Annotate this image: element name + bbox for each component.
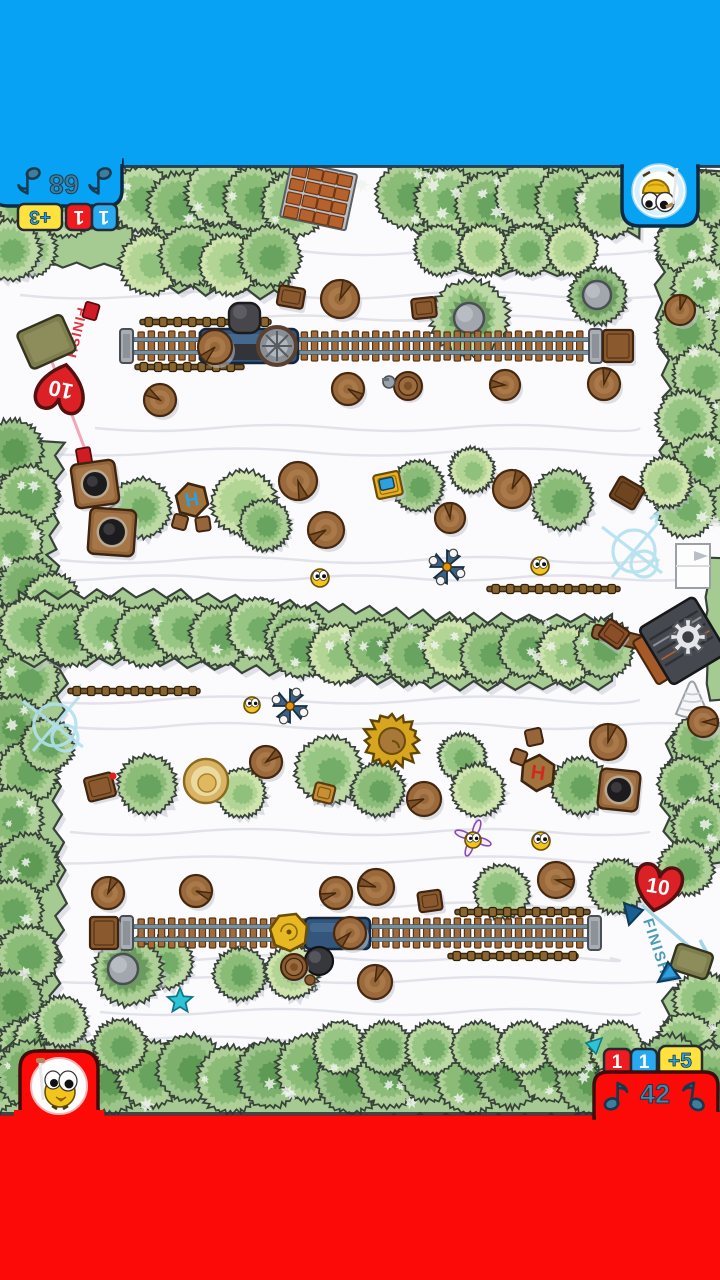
- svg-text:42: 42: [640, 1079, 670, 1109]
- svg-text:1: 1: [639, 1052, 650, 1073]
- svg-text:1: 1: [73, 206, 84, 227]
- svg-text:+3: +3: [29, 206, 51, 227]
- svg-text:10: 10: [644, 874, 671, 901]
- svg-text:68: 68: [49, 169, 79, 199]
- svg-text:1: 1: [98, 206, 109, 227]
- svg-text:H: H: [529, 761, 546, 785]
- svg-text:1: 1: [612, 1052, 623, 1073]
- svg-text:+5: +5: [668, 1050, 692, 1073]
- svg-text:10: 10: [46, 375, 75, 405]
